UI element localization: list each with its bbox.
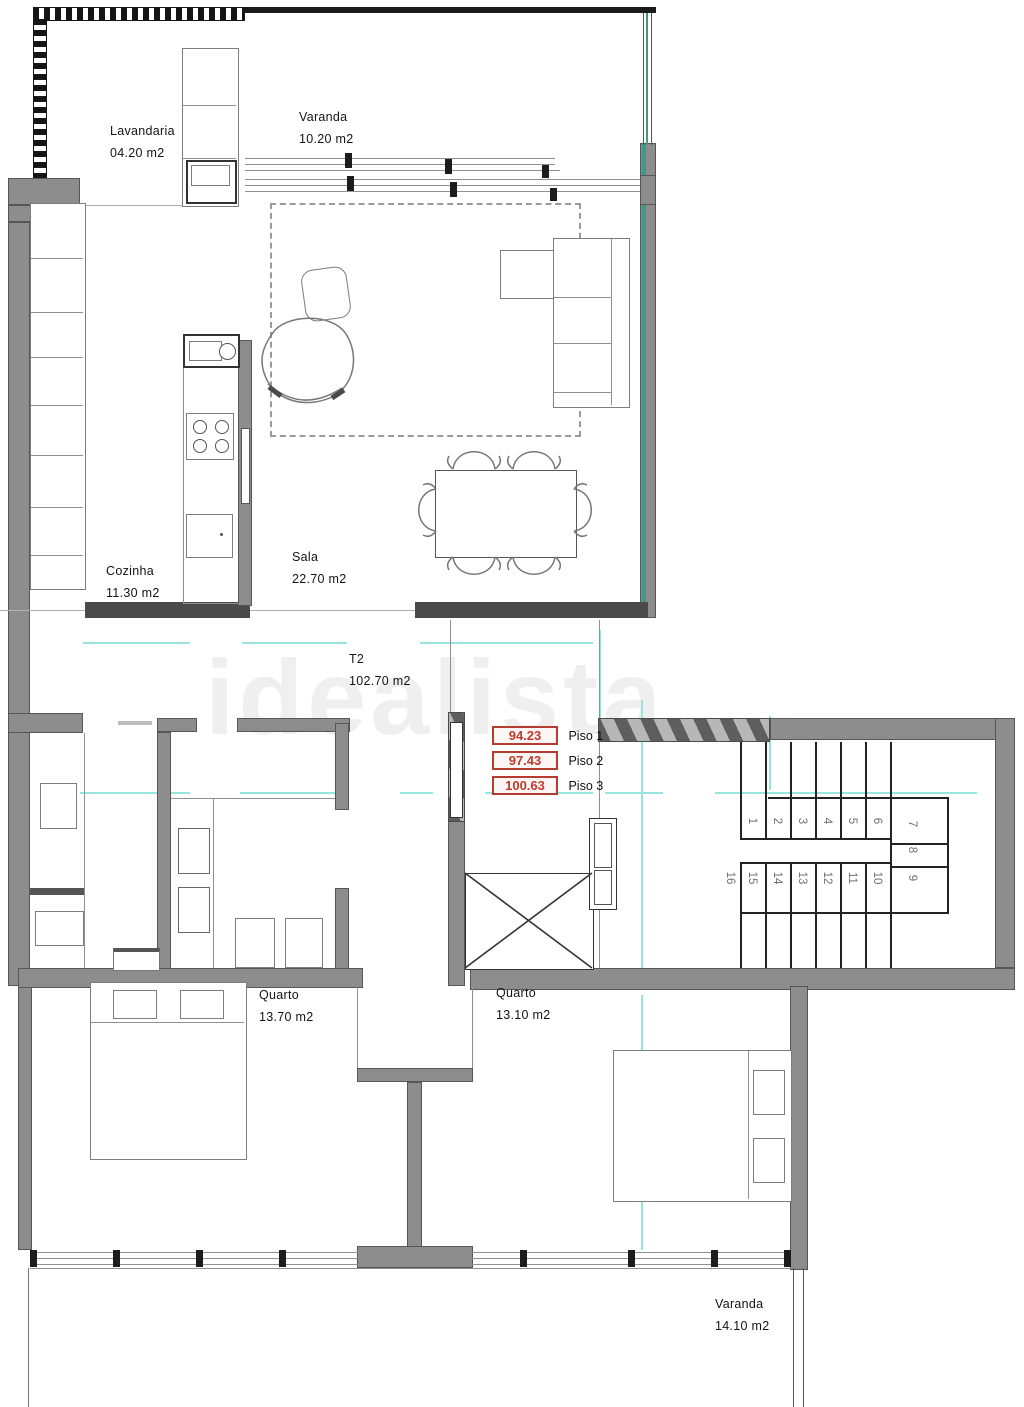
closet-right-wall <box>335 723 349 810</box>
railing-line <box>245 191 640 192</box>
dining-chair <box>508 452 561 469</box>
railing-post <box>445 159 452 174</box>
wardrobe-unit <box>178 887 210 933</box>
level-label: Piso 2 <box>568 754 603 768</box>
railing-post <box>520 1250 527 1267</box>
room-name: Sala <box>292 546 347 568</box>
railing-line <box>245 179 640 180</box>
step-number: 6 <box>871 811 883 831</box>
room-label-varanda-top: Varanda 10.20 m2 <box>299 106 354 150</box>
cabinet-divider <box>183 158 236 159</box>
railing-post <box>784 1250 791 1267</box>
closet-depth-line <box>213 798 214 968</box>
railing-post <box>550 188 557 201</box>
stair-tread <box>765 862 767 968</box>
railing-line <box>30 1264 792 1265</box>
sofa-cushion-line <box>554 392 611 393</box>
divider-stem <box>407 1082 422 1248</box>
railing-post <box>279 1250 286 1267</box>
shelf-divider <box>31 312 83 313</box>
railing-post <box>345 153 352 168</box>
level-value: 100.63 <box>492 776 558 795</box>
pillow <box>753 1138 785 1183</box>
guide-line <box>641 700 643 990</box>
counter-edge <box>183 603 245 604</box>
wall-segment <box>8 178 80 205</box>
guide-line <box>240 792 345 794</box>
dresser-unit <box>285 918 323 968</box>
level-label: Piso 1 <box>568 729 603 743</box>
room-label-varanda-bottom: Varanda 14.10 m2 <box>715 1293 770 1337</box>
stair-line <box>890 866 949 868</box>
balcony-side-line <box>28 1268 29 1407</box>
left-exterior-wall <box>8 222 30 986</box>
shelf-divider <box>31 455 83 456</box>
railing-post <box>30 1250 37 1267</box>
step-number: 8 <box>906 840 918 860</box>
stair-tread <box>890 742 892 912</box>
room-area: 10.20 m2 <box>299 128 354 150</box>
hall-wall-line <box>450 620 451 712</box>
dishwasher <box>186 514 233 558</box>
dining-table <box>435 470 577 558</box>
room-label-sala: Sala 22.70 m2 <box>292 546 347 590</box>
step-number: 4 <box>821 811 833 831</box>
room-name: Lavandaria <box>110 120 175 142</box>
step-number: 9 <box>906 868 918 888</box>
guide-line <box>605 792 663 794</box>
pillow <box>180 990 224 1019</box>
divider-top-bar <box>357 1068 473 1082</box>
bed-headboard-line <box>91 1022 244 1023</box>
railing-post <box>628 1250 635 1267</box>
step-number: 11 <box>846 868 858 888</box>
dresser-unit <box>235 918 275 968</box>
level-row: 100.63 Piso 3 <box>492 776 603 795</box>
pillow <box>113 990 157 1019</box>
stair-tread <box>790 742 792 838</box>
step-number: 12 <box>821 868 833 888</box>
stair-top-wall-cut <box>598 718 770 742</box>
sofa-cushion-line <box>554 343 611 344</box>
dining-chair <box>419 484 436 537</box>
bed-headboard-line <box>748 1051 749 1199</box>
lavandaria-floor-line <box>80 205 183 206</box>
sofa-cushion-line <box>554 297 611 298</box>
stair-line <box>740 838 892 840</box>
guide-line <box>242 642 347 644</box>
guide-line <box>420 642 593 644</box>
railing-post <box>542 165 549 178</box>
railing-end-wall <box>640 175 656 205</box>
railing-post <box>113 1250 120 1267</box>
divider-line <box>472 986 473 1068</box>
railing-post <box>711 1250 718 1267</box>
guide-line <box>715 792 977 794</box>
room-area: 13.10 m2 <box>496 1004 551 1026</box>
kitchen-wall-slot <box>241 428 250 504</box>
step-number: 2 <box>771 811 783 831</box>
closet-top-wall <box>157 718 197 732</box>
balcony-glass-edge <box>651 13 652 145</box>
dining-chair <box>508 557 561 574</box>
balcony-side-line <box>803 1268 804 1407</box>
closet-right-wall <box>335 888 349 972</box>
step-number: 1 <box>746 811 758 831</box>
divider-line <box>357 986 358 1068</box>
railing-post <box>196 1250 203 1267</box>
pillow <box>753 1070 785 1115</box>
stair-tread <box>865 862 867 968</box>
hall-wall-line <box>599 908 600 968</box>
elevator-door-panel <box>594 823 612 868</box>
stair-line <box>947 797 949 912</box>
insulated-wall <box>33 7 245 21</box>
niche-box <box>113 948 160 971</box>
cabinet-divider <box>183 105 236 106</box>
guide-line <box>400 792 433 794</box>
railing-line <box>245 158 555 159</box>
shelf-divider <box>31 258 83 259</box>
hall-wall-line <box>599 620 600 718</box>
wc-divider-wall <box>30 888 84 895</box>
railing-post <box>450 182 457 197</box>
elevator-door-panel <box>594 870 612 905</box>
cooktop <box>186 413 234 460</box>
level-row: 97.43 Piso 2 <box>492 751 603 770</box>
sink-bowl <box>219 343 236 360</box>
wardrobe-unit <box>178 828 210 874</box>
door-leaf-line <box>118 721 152 725</box>
wc-top-wall <box>8 713 83 733</box>
counter-edge <box>183 334 184 604</box>
balcony-side-line <box>793 1268 794 1407</box>
stair-tread <box>865 742 867 838</box>
room-label-lavandaria: Lavandaria 04.20 m2 <box>110 120 175 164</box>
appliance-dot <box>220 533 223 536</box>
room-name: Varanda <box>715 1293 770 1315</box>
dining-chair <box>448 557 501 574</box>
level-row: 94.23 Piso 1 <box>492 726 603 745</box>
step-number: 14 <box>771 868 783 888</box>
exterior-wall <box>245 7 656 13</box>
room-label-cozinha: Cozinha 11.30 m2 <box>106 560 160 604</box>
stair-line <box>740 912 949 914</box>
right-exterior-wall <box>995 718 1015 968</box>
step-number: 13 <box>796 868 808 888</box>
railing-line <box>30 1252 792 1253</box>
closet-depth-line <box>171 798 335 799</box>
door-leaf <box>450 722 463 818</box>
guide-line <box>80 792 190 794</box>
step-number: 3 <box>796 811 808 831</box>
stair-tread <box>765 742 767 838</box>
shelf-divider <box>31 405 83 406</box>
room-area: 13.70 m2 <box>259 1006 314 1028</box>
step-number: 16 <box>724 868 736 888</box>
closet-top-wall <box>237 718 350 732</box>
sofa-side-table <box>500 250 554 299</box>
room-area: 04.20 m2 <box>110 142 175 164</box>
burner <box>215 439 229 453</box>
wc-fixture <box>40 783 77 829</box>
step-number: 5 <box>846 811 858 831</box>
wall-segment <box>85 602 250 618</box>
step-number: 7 <box>906 814 918 834</box>
sofa-backrest-line <box>611 239 612 405</box>
stair-line <box>768 797 949 799</box>
room-area: 22.70 m2 <box>292 568 347 590</box>
railing-post <box>347 176 354 191</box>
shelf-divider <box>31 507 83 508</box>
side-table <box>300 265 353 323</box>
glazing-line <box>642 144 646 617</box>
stair-tread <box>815 862 817 968</box>
shelf-divider <box>31 555 83 556</box>
stair-tread <box>890 912 892 968</box>
room-label-quarto-left: Quarto 13.70 m2 <box>259 984 314 1028</box>
stair-top-wall <box>770 718 1015 740</box>
stair-line <box>890 843 949 845</box>
balcony-glass-edge <box>643 13 644 145</box>
level-label: Piso 3 <box>568 779 603 793</box>
burner <box>193 420 207 434</box>
bottom-wall-band <box>470 968 1015 990</box>
washer-drum <box>191 165 230 186</box>
step-number: 10 <box>871 868 883 888</box>
stair-tread <box>740 742 742 838</box>
railing-line <box>30 1258 792 1259</box>
room-name: Cozinha <box>106 560 160 582</box>
wc-fixture <box>35 911 84 946</box>
stair-tread <box>840 742 842 838</box>
room-name: Quarto <box>496 982 551 1004</box>
room-area: 11.30 m2 <box>106 582 160 604</box>
wc-partition-line <box>84 733 85 968</box>
left-exterior-wall <box>18 986 32 1250</box>
level-value: 94.23 <box>492 726 558 745</box>
insulated-wall <box>33 19 47 178</box>
closet-left-wall <box>157 732 171 972</box>
burner <box>193 439 207 453</box>
sofa <box>553 238 630 408</box>
unit-area: 102.70 m2 <box>349 670 411 692</box>
stair-tread <box>815 742 817 838</box>
room-name: Quarto <box>259 984 314 1006</box>
railing-line <box>245 164 555 165</box>
railing-line <box>30 1268 792 1269</box>
unit-label: T2 102.70 m2 <box>349 648 411 692</box>
room-label-quarto-right: Quarto 13.10 m2 <box>496 982 551 1026</box>
floor-plan-canvas: idealista <box>0 0 1024 1407</box>
step-number: 15 <box>746 868 758 888</box>
sink-basin <box>189 341 222 361</box>
level-value: 97.43 <box>492 751 558 770</box>
guide-line <box>83 642 190 644</box>
stair-tread <box>790 862 792 968</box>
unit-type: T2 <box>349 648 411 670</box>
stair-tread <box>840 862 842 968</box>
dining-chair <box>448 452 501 469</box>
railing-line <box>245 185 640 186</box>
wall-segment <box>415 602 648 618</box>
room-name: Varanda <box>299 106 354 128</box>
shelf-divider <box>31 357 83 358</box>
burner <box>215 420 229 434</box>
elevator-shaft <box>465 873 594 970</box>
stair-tread <box>740 862 742 968</box>
wardrobe-column <box>30 203 86 590</box>
right-bedroom-wall <box>790 986 808 1270</box>
railing-line <box>245 170 560 171</box>
room-area: 14.10 m2 <box>715 1315 770 1337</box>
glazing-line <box>646 13 648 145</box>
